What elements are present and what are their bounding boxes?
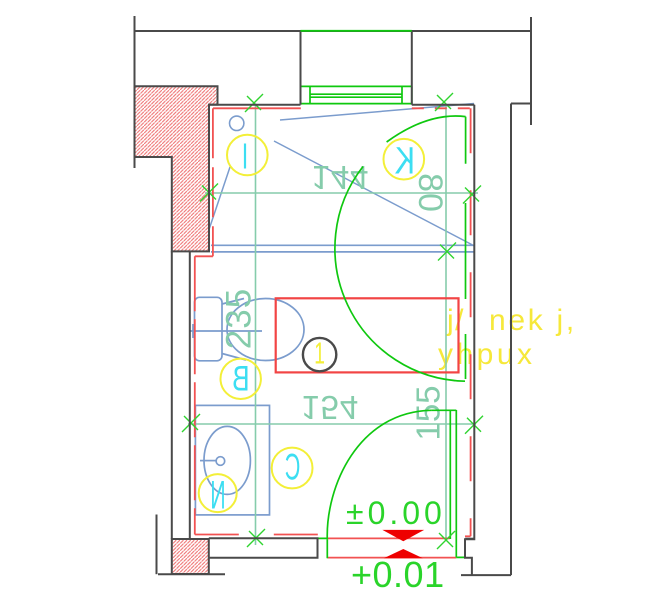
svg-text:K: K [395, 140, 415, 182]
svg-text:154: 154 [301, 389, 359, 426]
svg-text:80: 80 [411, 173, 449, 213]
svg-text:155: 155 [410, 385, 447, 440]
svg-text:C: C [285, 448, 300, 488]
svg-text:yhpux: yhpux [438, 338, 536, 371]
svg-text:144: 144 [311, 159, 369, 196]
svg-text:B: B [232, 359, 250, 399]
svg-text:1: 1 [314, 337, 325, 371]
svg-text:N: N [210, 472, 225, 517]
svg-text:+0.01: +0.01 [351, 554, 445, 595]
svg-text:±0.00: ±0.00 [346, 495, 446, 531]
svg-text:235: 235 [220, 288, 259, 349]
svg-text:j/: j/ [446, 304, 465, 337]
svg-text:nek j,: nek j, [489, 304, 577, 337]
